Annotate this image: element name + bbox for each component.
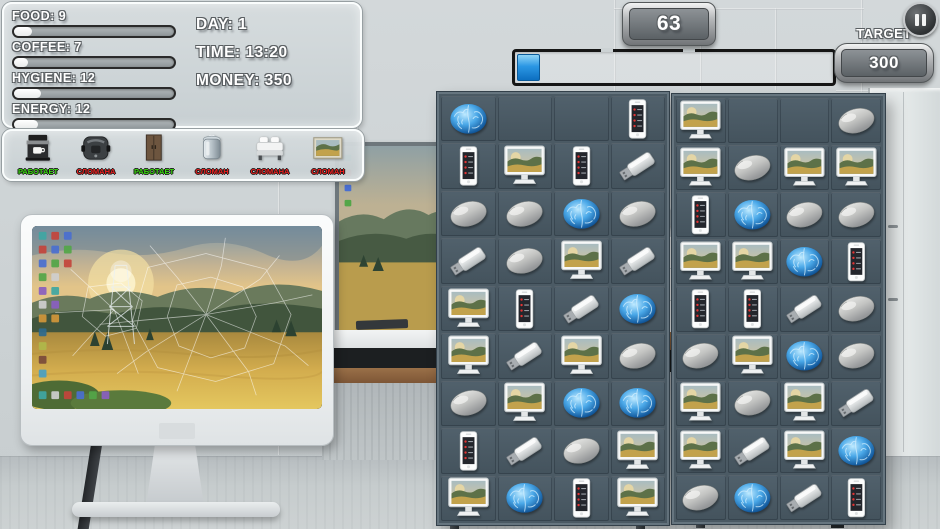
tile-brain[interactable] <box>728 192 778 237</box>
stat-bar-fill <box>14 58 28 67</box>
wardrobe-icon <box>137 134 171 162</box>
monitor-icon <box>613 430 662 472</box>
monitor-stand <box>146 442 204 506</box>
monitor-icon <box>782 430 827 472</box>
monitor-icon <box>678 147 723 189</box>
tile-monitor[interactable] <box>554 333 609 378</box>
mouse-icon <box>678 477 723 519</box>
monitor-icon <box>444 288 493 330</box>
tile-mouse[interactable] <box>831 334 881 379</box>
mouse-icon <box>834 335 879 377</box>
mouse-icon <box>500 193 549 235</box>
usb-drive-icon <box>613 145 662 187</box>
desktop-wallpaper <box>32 226 322 409</box>
phone-icon <box>613 98 662 140</box>
tile-brain[interactable] <box>498 476 553 521</box>
tile-phone[interactable] <box>611 96 666 141</box>
brain-icon <box>782 335 827 377</box>
tile-mouse[interactable] <box>831 192 881 237</box>
stat-bar <box>12 87 176 100</box>
tile-brain[interactable] <box>728 475 778 520</box>
tile-monitor[interactable] <box>441 286 496 331</box>
mouse-icon <box>678 335 723 377</box>
cabinet-line <box>903 92 904 452</box>
stat-bar <box>12 56 176 69</box>
stat-bar-fill <box>14 89 41 98</box>
score-value: 63 <box>657 12 681 36</box>
mouse-icon <box>730 147 775 189</box>
tile-phone[interactable] <box>554 143 609 188</box>
tile-brain[interactable] <box>611 381 666 426</box>
brain-icon <box>834 430 879 472</box>
picture-icon <box>311 134 345 167</box>
tile-brain[interactable] <box>441 96 496 141</box>
progress-bar-fill <box>517 54 540 81</box>
coffee-machine-icon <box>21 134 55 167</box>
tile-mouse[interactable] <box>676 475 726 520</box>
tile-mouse[interactable] <box>498 238 553 283</box>
match-board-right <box>671 93 886 525</box>
pause-icon <box>922 14 926 26</box>
tile-phone[interactable] <box>441 143 496 188</box>
tile-brain[interactable] <box>780 239 830 284</box>
mouse-icon <box>834 100 879 142</box>
tile-empty <box>780 98 830 143</box>
tile-mouse[interactable] <box>498 191 553 236</box>
wardrobe-icon <box>137 134 171 167</box>
brain-icon <box>557 193 606 235</box>
tile-empty <box>728 98 778 143</box>
stat-label: COFFEE: 7 <box>12 40 180 55</box>
tile-phone[interactable] <box>441 428 496 473</box>
tile-mouse[interactable] <box>611 333 666 378</box>
multicooker-icon <box>79 134 113 167</box>
monitor-icon <box>834 147 879 189</box>
stat-label: ENERGY: 12 <box>12 102 180 117</box>
usb-drive-icon <box>444 240 493 282</box>
progress-bar <box>512 49 836 86</box>
tile-monitor[interactable] <box>498 381 553 426</box>
game-screen: FOOD: 9COFFEE: 7HYGIENE: 12ENERGY: 12 DA… <box>0 0 940 529</box>
stat-label: HYGIENE: 12 <box>12 71 180 86</box>
stat-bar <box>12 25 176 38</box>
phone-icon <box>678 194 723 236</box>
tile-monitor[interactable] <box>441 476 496 521</box>
tile-mouse[interactable] <box>728 145 778 190</box>
multicooker-icon <box>79 134 113 162</box>
coffee-machine-icon <box>21 134 55 162</box>
stat-energy: ENERGY: 12 <box>12 102 180 131</box>
monitor-icon <box>678 382 723 424</box>
cracked-screen <box>32 226 322 409</box>
mouse-icon <box>444 382 493 424</box>
stat-bar-fill <box>14 27 32 36</box>
monitor-icon <box>500 382 549 424</box>
mouse-icon <box>834 194 879 236</box>
tile-phone[interactable] <box>498 286 553 331</box>
stat-bar-fill <box>14 120 38 129</box>
mouse-icon <box>782 194 827 236</box>
match-board-left <box>436 91 670 526</box>
tile-mouse[interactable] <box>831 98 881 143</box>
target-plate: 300 <box>841 49 927 77</box>
boiler-icon <box>195 134 229 167</box>
tile-monitor[interactable] <box>676 239 726 284</box>
target-display: 300 <box>834 43 934 83</box>
keyboard <box>356 319 408 330</box>
score-display: 63 <box>622 2 716 46</box>
mouse-icon <box>500 240 549 282</box>
tile-monitor[interactable] <box>676 98 726 143</box>
tile-brain[interactable] <box>611 286 666 331</box>
tile-mouse[interactable] <box>780 192 830 237</box>
tile-phone[interactable] <box>676 192 726 237</box>
stat-label: FOOD: 9 <box>12 9 180 24</box>
tile-monitor[interactable] <box>676 428 726 473</box>
monitor-base <box>72 502 280 517</box>
progress-notch <box>683 48 695 52</box>
score-plate: 63 <box>629 8 709 40</box>
monitor-stand-slot <box>159 423 195 439</box>
tile-mouse[interactable] <box>831 286 881 331</box>
tile-usb[interactable] <box>611 238 666 283</box>
stats-list: FOOD: 9COFFEE: 7HYGIENE: 12ENERGY: 12 <box>12 9 180 133</box>
day-label: DAY: 1 <box>196 16 292 34</box>
tile-monitor[interactable] <box>780 381 830 426</box>
brain-icon <box>557 382 606 424</box>
tile-monitor[interactable] <box>676 381 726 426</box>
tile-monitor[interactable] <box>611 428 666 473</box>
tile-usb[interactable] <box>728 428 778 473</box>
progress-notch <box>601 48 613 52</box>
tile-brain[interactable] <box>831 428 881 473</box>
tile-monitor[interactable] <box>611 476 666 521</box>
monitor-icon <box>782 147 827 189</box>
usb-drive-icon <box>782 288 827 330</box>
brain-icon <box>613 382 662 424</box>
mouse-icon <box>730 382 775 424</box>
brain-icon <box>444 98 493 140</box>
tile-usb[interactable] <box>780 475 830 520</box>
phone-icon <box>557 477 606 519</box>
brain-icon <box>500 477 549 519</box>
pause-icon <box>915 14 919 26</box>
monitor-icon <box>782 382 827 424</box>
mouse-icon <box>613 335 662 377</box>
monitor-icon <box>678 241 723 283</box>
tile-mouse[interactable] <box>441 381 496 426</box>
usb-drive-icon <box>500 335 549 377</box>
monitor-icon <box>678 100 723 142</box>
brain-icon <box>782 241 827 283</box>
monitor-icon <box>500 145 549 187</box>
appliance-status: СЛОМАНА <box>251 167 290 176</box>
tile-mouse[interactable] <box>728 381 778 426</box>
time-label: TIME: 13:20 <box>196 44 292 62</box>
monitor-icon <box>730 241 775 283</box>
mouse-icon <box>444 193 493 235</box>
stat-coffee: COFFEE: 7 <box>12 40 180 69</box>
mouse-icon <box>834 288 879 330</box>
appliance-boiler[interactable]: СЛОМАН <box>184 134 240 176</box>
tile-empty <box>554 96 609 141</box>
monitor-icon <box>557 335 606 377</box>
appliance-coffee-machine[interactable]: РАБОТАЕТ <box>10 134 66 176</box>
monitor-icon <box>730 335 775 377</box>
tile-phone[interactable] <box>728 286 778 331</box>
tile-usb[interactable] <box>498 333 553 378</box>
monitor-icon <box>444 477 493 519</box>
mouse-icon <box>557 430 606 472</box>
phone-icon <box>678 288 723 330</box>
phone-icon <box>444 145 493 187</box>
tile-usb[interactable] <box>554 286 609 331</box>
usb-drive-icon <box>730 430 775 472</box>
cabinet-handle <box>888 225 898 228</box>
appliance-multicooker[interactable]: СЛОМАНА <box>68 134 124 176</box>
bed-icon <box>253 134 287 167</box>
tile-monitor[interactable] <box>554 238 609 283</box>
tile-mouse[interactable] <box>441 191 496 236</box>
phone-icon <box>730 288 775 330</box>
tile-usb[interactable] <box>441 238 496 283</box>
brain-icon <box>613 288 662 330</box>
tile-phone[interactable] <box>831 475 881 520</box>
brain-icon <box>730 477 775 519</box>
info-panel: DAY: 1 TIME: 13:20 MONEY: 350 <box>196 16 292 100</box>
tile-mouse[interactable] <box>676 334 726 379</box>
pause-button[interactable] <box>903 2 938 37</box>
stat-food: FOOD: 9 <box>12 9 180 38</box>
tile-usb[interactable] <box>611 143 666 188</box>
phone-icon <box>834 241 879 283</box>
money-label: MONEY: 350 <box>196 72 292 90</box>
broken-computer <box>20 214 332 529</box>
usb-drive-icon <box>613 240 662 282</box>
appliance-status: СЛОМАН <box>311 167 344 176</box>
phone-icon <box>444 430 493 472</box>
monitor-icon <box>444 335 493 377</box>
tile-phone[interactable] <box>554 476 609 521</box>
tile-phone[interactable] <box>676 286 726 331</box>
appliance-status: РАБОТАЕТ <box>18 167 58 176</box>
appliance-status: РАБОТАЕТ <box>134 167 174 176</box>
tile-monitor[interactable] <box>676 145 726 190</box>
picture-icon <box>311 134 345 162</box>
bed-icon <box>253 134 287 162</box>
usb-drive-icon <box>500 430 549 472</box>
phone-icon <box>500 288 549 330</box>
appliance-wardrobe[interactable]: РАБОТАЕТ <box>126 134 182 176</box>
monitor-icon <box>557 240 606 282</box>
appliance-status: СЛОМАНА <box>77 167 116 176</box>
tile-monitor[interactable] <box>831 145 881 190</box>
appliance-bed[interactable]: СЛОМАНА <box>242 134 298 176</box>
tile-usb[interactable] <box>498 428 553 473</box>
monitor-icon <box>613 477 662 519</box>
stats-panel: FOOD: 9COFFEE: 7HYGIENE: 12ENERGY: 12 DA… <box>2 2 362 128</box>
tile-mouse[interactable] <box>554 428 609 473</box>
tile-monitor[interactable] <box>498 143 553 188</box>
tile-phone[interactable] <box>831 239 881 284</box>
monitor-icon <box>678 430 723 472</box>
phone-icon <box>557 145 606 187</box>
tile-monitor[interactable] <box>728 334 778 379</box>
boiler-icon <box>195 134 229 162</box>
target-value: 300 <box>869 53 899 73</box>
tile-monitor[interactable] <box>780 145 830 190</box>
cabinet-handle <box>888 298 898 301</box>
appliance-status: СЛОМАН <box>195 167 228 176</box>
brain-icon <box>730 194 775 236</box>
tile-monitor[interactable] <box>728 239 778 284</box>
tile-empty <box>498 96 553 141</box>
appliance-panel: РАБОТАЕТСЛОМАНАРАБОТАЕТСЛОМАНСЛОМАНАСЛОМ… <box>2 129 364 181</box>
usb-drive-icon <box>557 288 606 330</box>
tile-monitor[interactable] <box>441 333 496 378</box>
tile-brain[interactable] <box>554 191 609 236</box>
tile-monitor[interactable] <box>780 428 830 473</box>
appliance-picture[interactable]: СЛОМАН <box>300 134 356 176</box>
usb-drive-icon <box>834 382 879 424</box>
tile-mouse[interactable] <box>611 191 666 236</box>
tile-brain[interactable] <box>554 381 609 426</box>
stat-hygiene: HYGIENE: 12 <box>12 71 180 100</box>
tile-usb[interactable] <box>780 286 830 331</box>
mouse-icon <box>613 193 662 235</box>
tile-brain[interactable] <box>780 334 830 379</box>
usb-drive-icon <box>782 477 827 519</box>
monitor-body <box>20 214 334 446</box>
phone-icon <box>834 477 879 519</box>
tile-usb[interactable] <box>831 381 881 426</box>
